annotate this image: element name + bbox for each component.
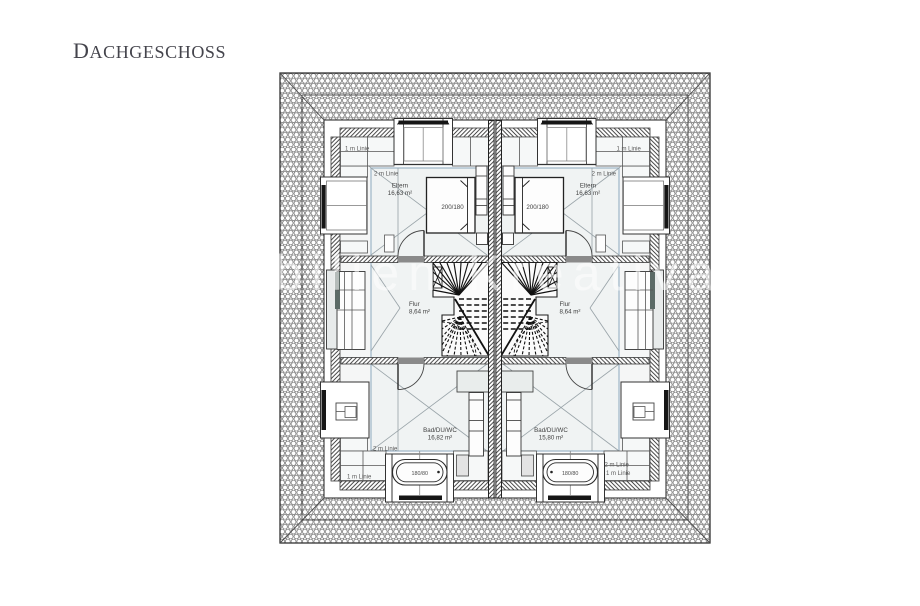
svg-text:2 m Linie: 2 m Linie — [373, 447, 398, 453]
svg-text:Flur: Flur — [560, 301, 571, 308]
svg-text:1 m Linie: 1 m Linie — [606, 471, 631, 477]
svg-text:15,80 m²: 15,80 m² — [539, 435, 563, 442]
svg-text:Bad/DU/WC: Bad/DU/WC — [534, 427, 568, 434]
svg-text:180/80: 180/80 — [562, 471, 579, 477]
svg-text:16,82 m²: 16,82 m² — [428, 435, 452, 442]
svg-text:200/180: 200/180 — [441, 204, 464, 211]
svg-text:1 m Linie: 1 m Linie — [617, 147, 642, 153]
svg-text:2 m Linie: 2 m Linie — [605, 463, 630, 469]
svg-text:16,63 m²: 16,63 m² — [388, 190, 412, 197]
svg-text:1 m Linie: 1 m Linie — [347, 475, 372, 481]
svg-text:DACHGESCHOSS: DACHGESCHOSS — [73, 38, 226, 63]
svg-text:Eltern: Eltern — [580, 183, 597, 190]
svg-text:Eltern: Eltern — [392, 183, 409, 190]
svg-text:8,64 m²: 8,64 m² — [560, 309, 581, 316]
svg-text:Flur: Flur — [409, 301, 420, 308]
svg-text:180/80: 180/80 — [412, 471, 429, 477]
svg-text:Immobilien Kreativa GmbH: Immobilien Kreativa GmbH — [113, 245, 920, 301]
svg-text:1 m Linie: 1 m Linie — [345, 147, 370, 153]
svg-text:2 m Linie: 2 m Linie — [592, 172, 617, 178]
svg-text:Bad/DU/WC: Bad/DU/WC — [423, 427, 457, 434]
svg-text:200/180: 200/180 — [526, 204, 549, 211]
svg-text:2 m Linie: 2 m Linie — [374, 172, 399, 178]
svg-text:8,64 m²: 8,64 m² — [409, 309, 430, 316]
svg-text:16,63 m²: 16,63 m² — [576, 190, 600, 197]
